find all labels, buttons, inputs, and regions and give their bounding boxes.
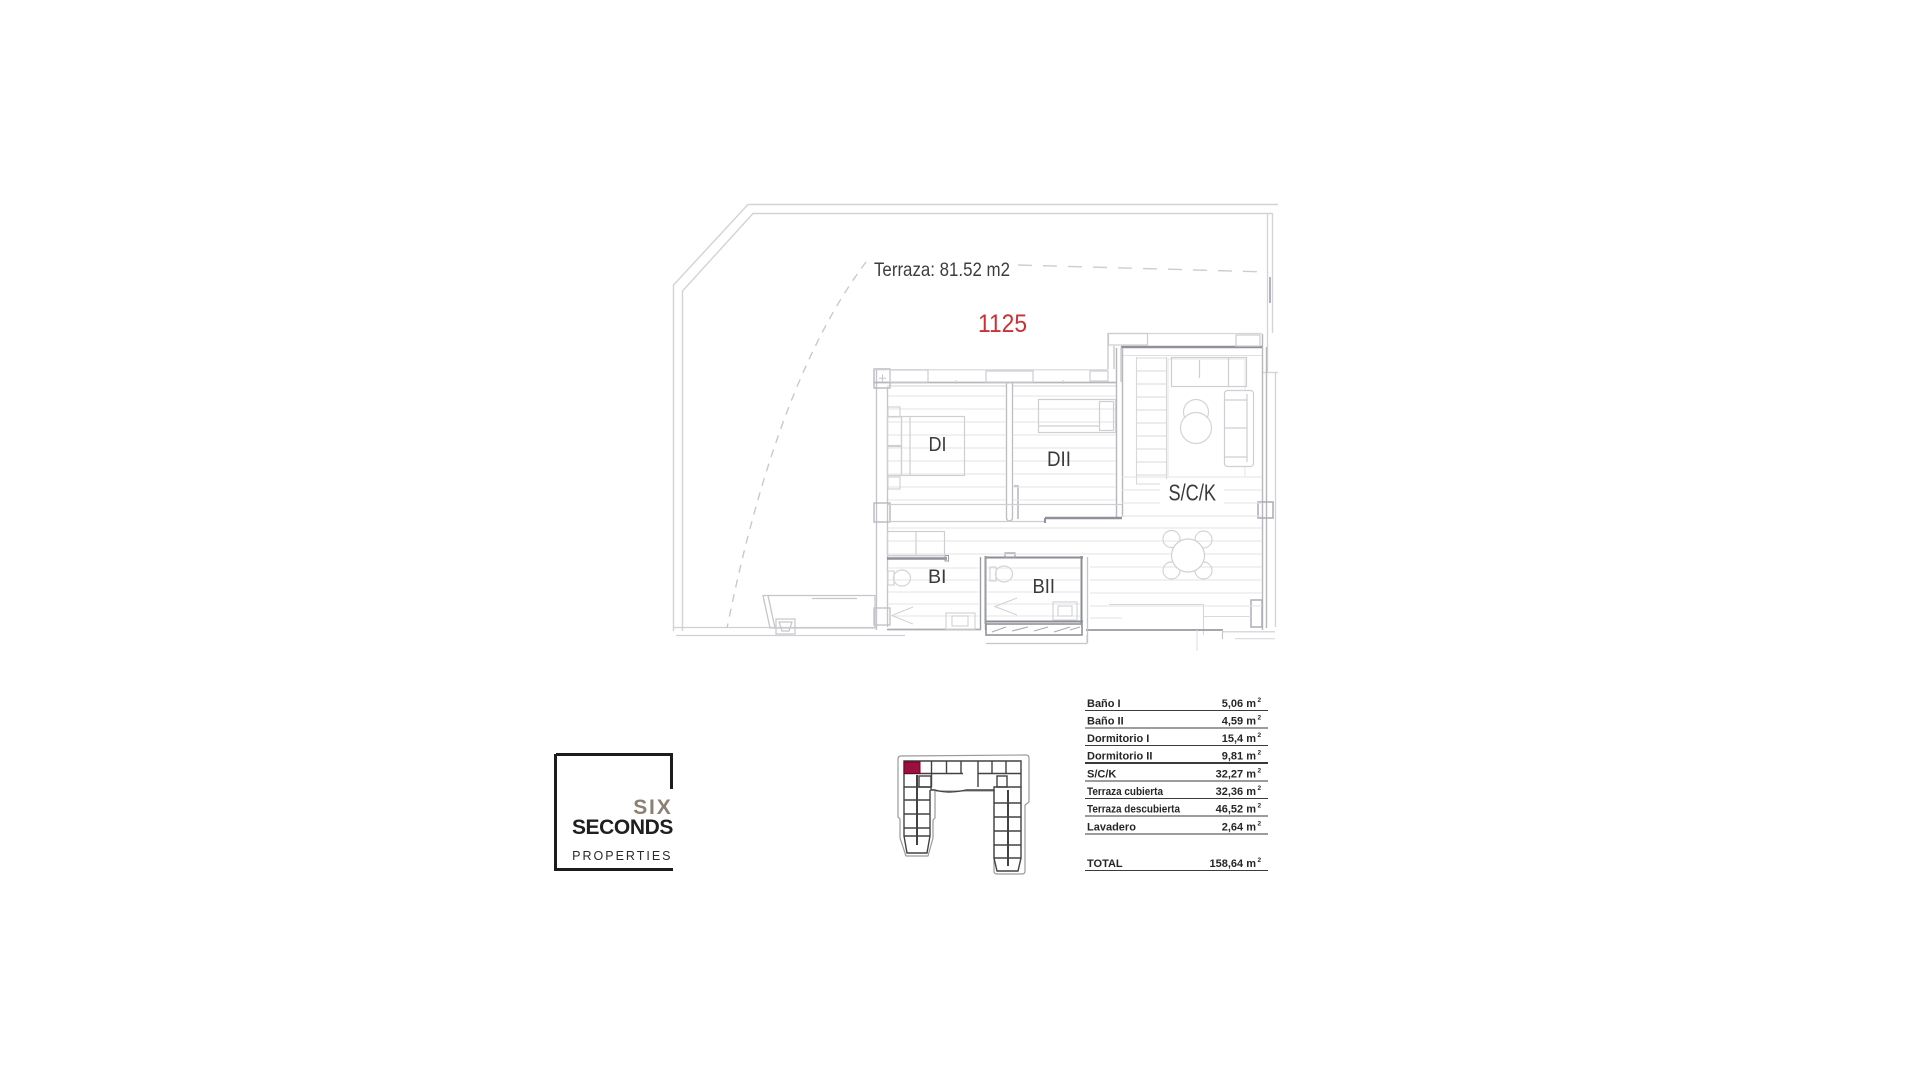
svg-text:TOTAL: TOTAL [1087, 858, 1123, 870]
svg-text:2: 2 [1258, 768, 1262, 775]
svg-text:46,52 m: 46,52 m [1216, 804, 1257, 816]
svg-text:2: 2 [1258, 785, 1262, 792]
svg-text:BI: BI [928, 566, 947, 588]
svg-text:Baño II: Baño II [1087, 716, 1124, 728]
svg-text:Terraza: 81.52 m2: Terraza: 81.52 m2 [874, 259, 1010, 281]
svg-text:PROPERTIES: PROPERTIES [572, 849, 672, 863]
svg-text:S/C/K: S/C/K [1169, 480, 1217, 506]
svg-text:Dormitorio II: Dormitorio II [1087, 751, 1152, 763]
svg-text:Baño I: Baño I [1087, 698, 1121, 710]
svg-text:DI: DI [929, 434, 947, 456]
svg-text:5,06 m: 5,06 m [1222, 698, 1256, 710]
svg-text:2: 2 [1258, 732, 1262, 739]
svg-text:32,36 m: 32,36 m [1216, 786, 1257, 798]
svg-text:158,64 m: 158,64 m [1210, 858, 1257, 870]
svg-text:Lavadero: Lavadero [1087, 822, 1136, 834]
svg-text:9,81 m: 9,81 m [1222, 751, 1256, 763]
svg-text:Dormitorio I: Dormitorio I [1087, 733, 1149, 745]
svg-text:15,4 m: 15,4 m [1222, 733, 1256, 745]
svg-text:2: 2 [1258, 750, 1262, 757]
svg-text:BII: BII [1033, 576, 1056, 598]
svg-text:2: 2 [1258, 697, 1262, 704]
svg-text:1125: 1125 [978, 310, 1027, 338]
svg-text:Terraza descubierta: Terraza descubierta [1087, 804, 1181, 816]
svg-text:S/C/K: S/C/K [1087, 769, 1116, 781]
svg-text:Terraza cubierta: Terraza cubierta [1087, 786, 1164, 798]
svg-text:2: 2 [1258, 803, 1262, 810]
svg-text:2,64 m: 2,64 m [1222, 822, 1256, 834]
svg-text:2: 2 [1258, 857, 1262, 864]
svg-text:SECONDS: SECONDS [572, 816, 673, 839]
svg-text:DII: DII [1047, 448, 1071, 471]
svg-text:32,27 m: 32,27 m [1216, 769, 1257, 781]
svg-text:2: 2 [1258, 821, 1262, 828]
svg-text:2: 2 [1258, 715, 1262, 722]
svg-text:4,59 m: 4,59 m [1222, 716, 1256, 728]
